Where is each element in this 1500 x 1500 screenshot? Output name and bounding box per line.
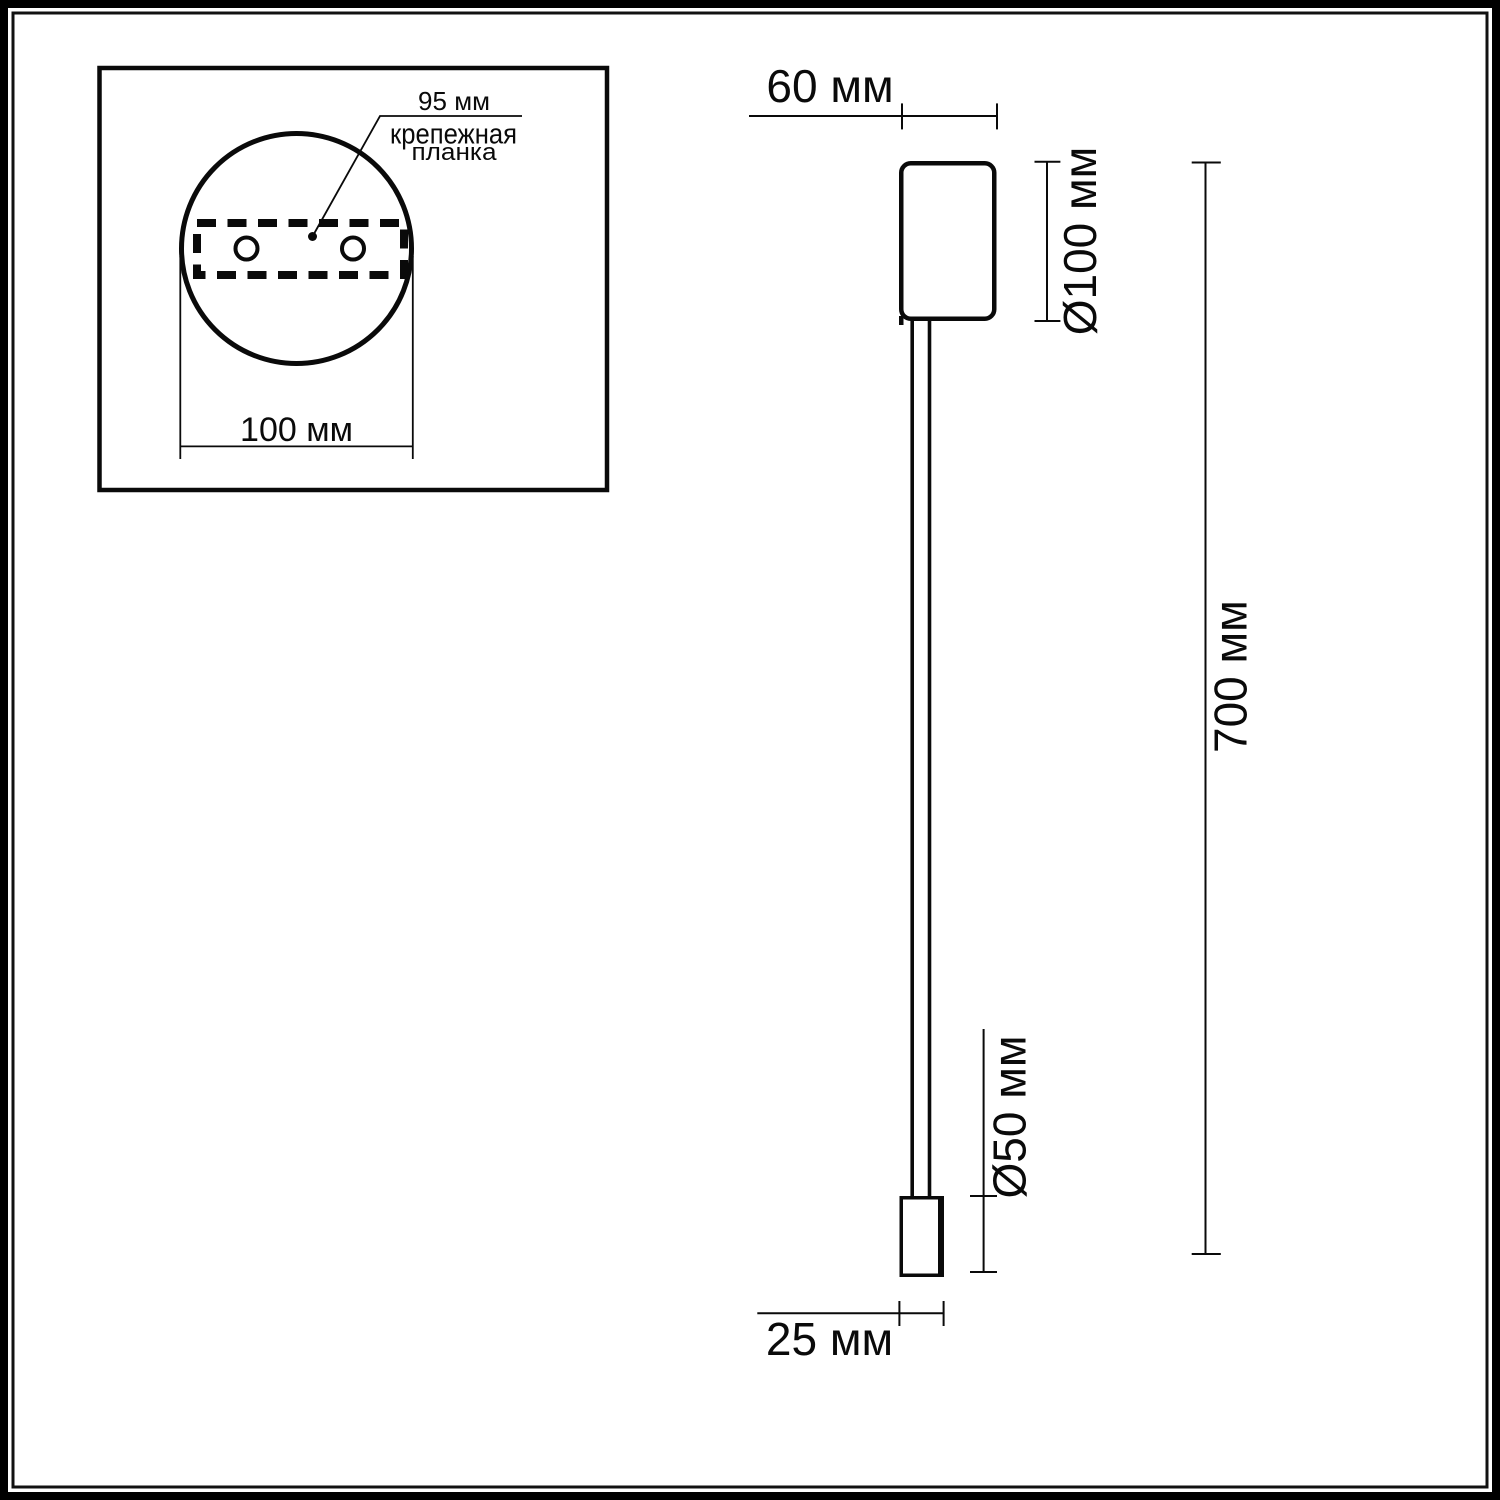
svg-text:25 мм: 25 мм: [766, 1313, 893, 1365]
svg-text:700 мм: 700 мм: [1205, 600, 1257, 753]
svg-text:Ø100 мм: Ø100 мм: [1054, 147, 1106, 336]
svg-text:100 мм: 100 мм: [240, 411, 353, 449]
svg-text:планка: планка: [412, 139, 498, 166]
svg-text:95 мм: 95 мм: [418, 86, 490, 116]
svg-text:Ø50 мм: Ø50 мм: [984, 1036, 1036, 1199]
svg-text:60 мм: 60 мм: [766, 60, 893, 112]
